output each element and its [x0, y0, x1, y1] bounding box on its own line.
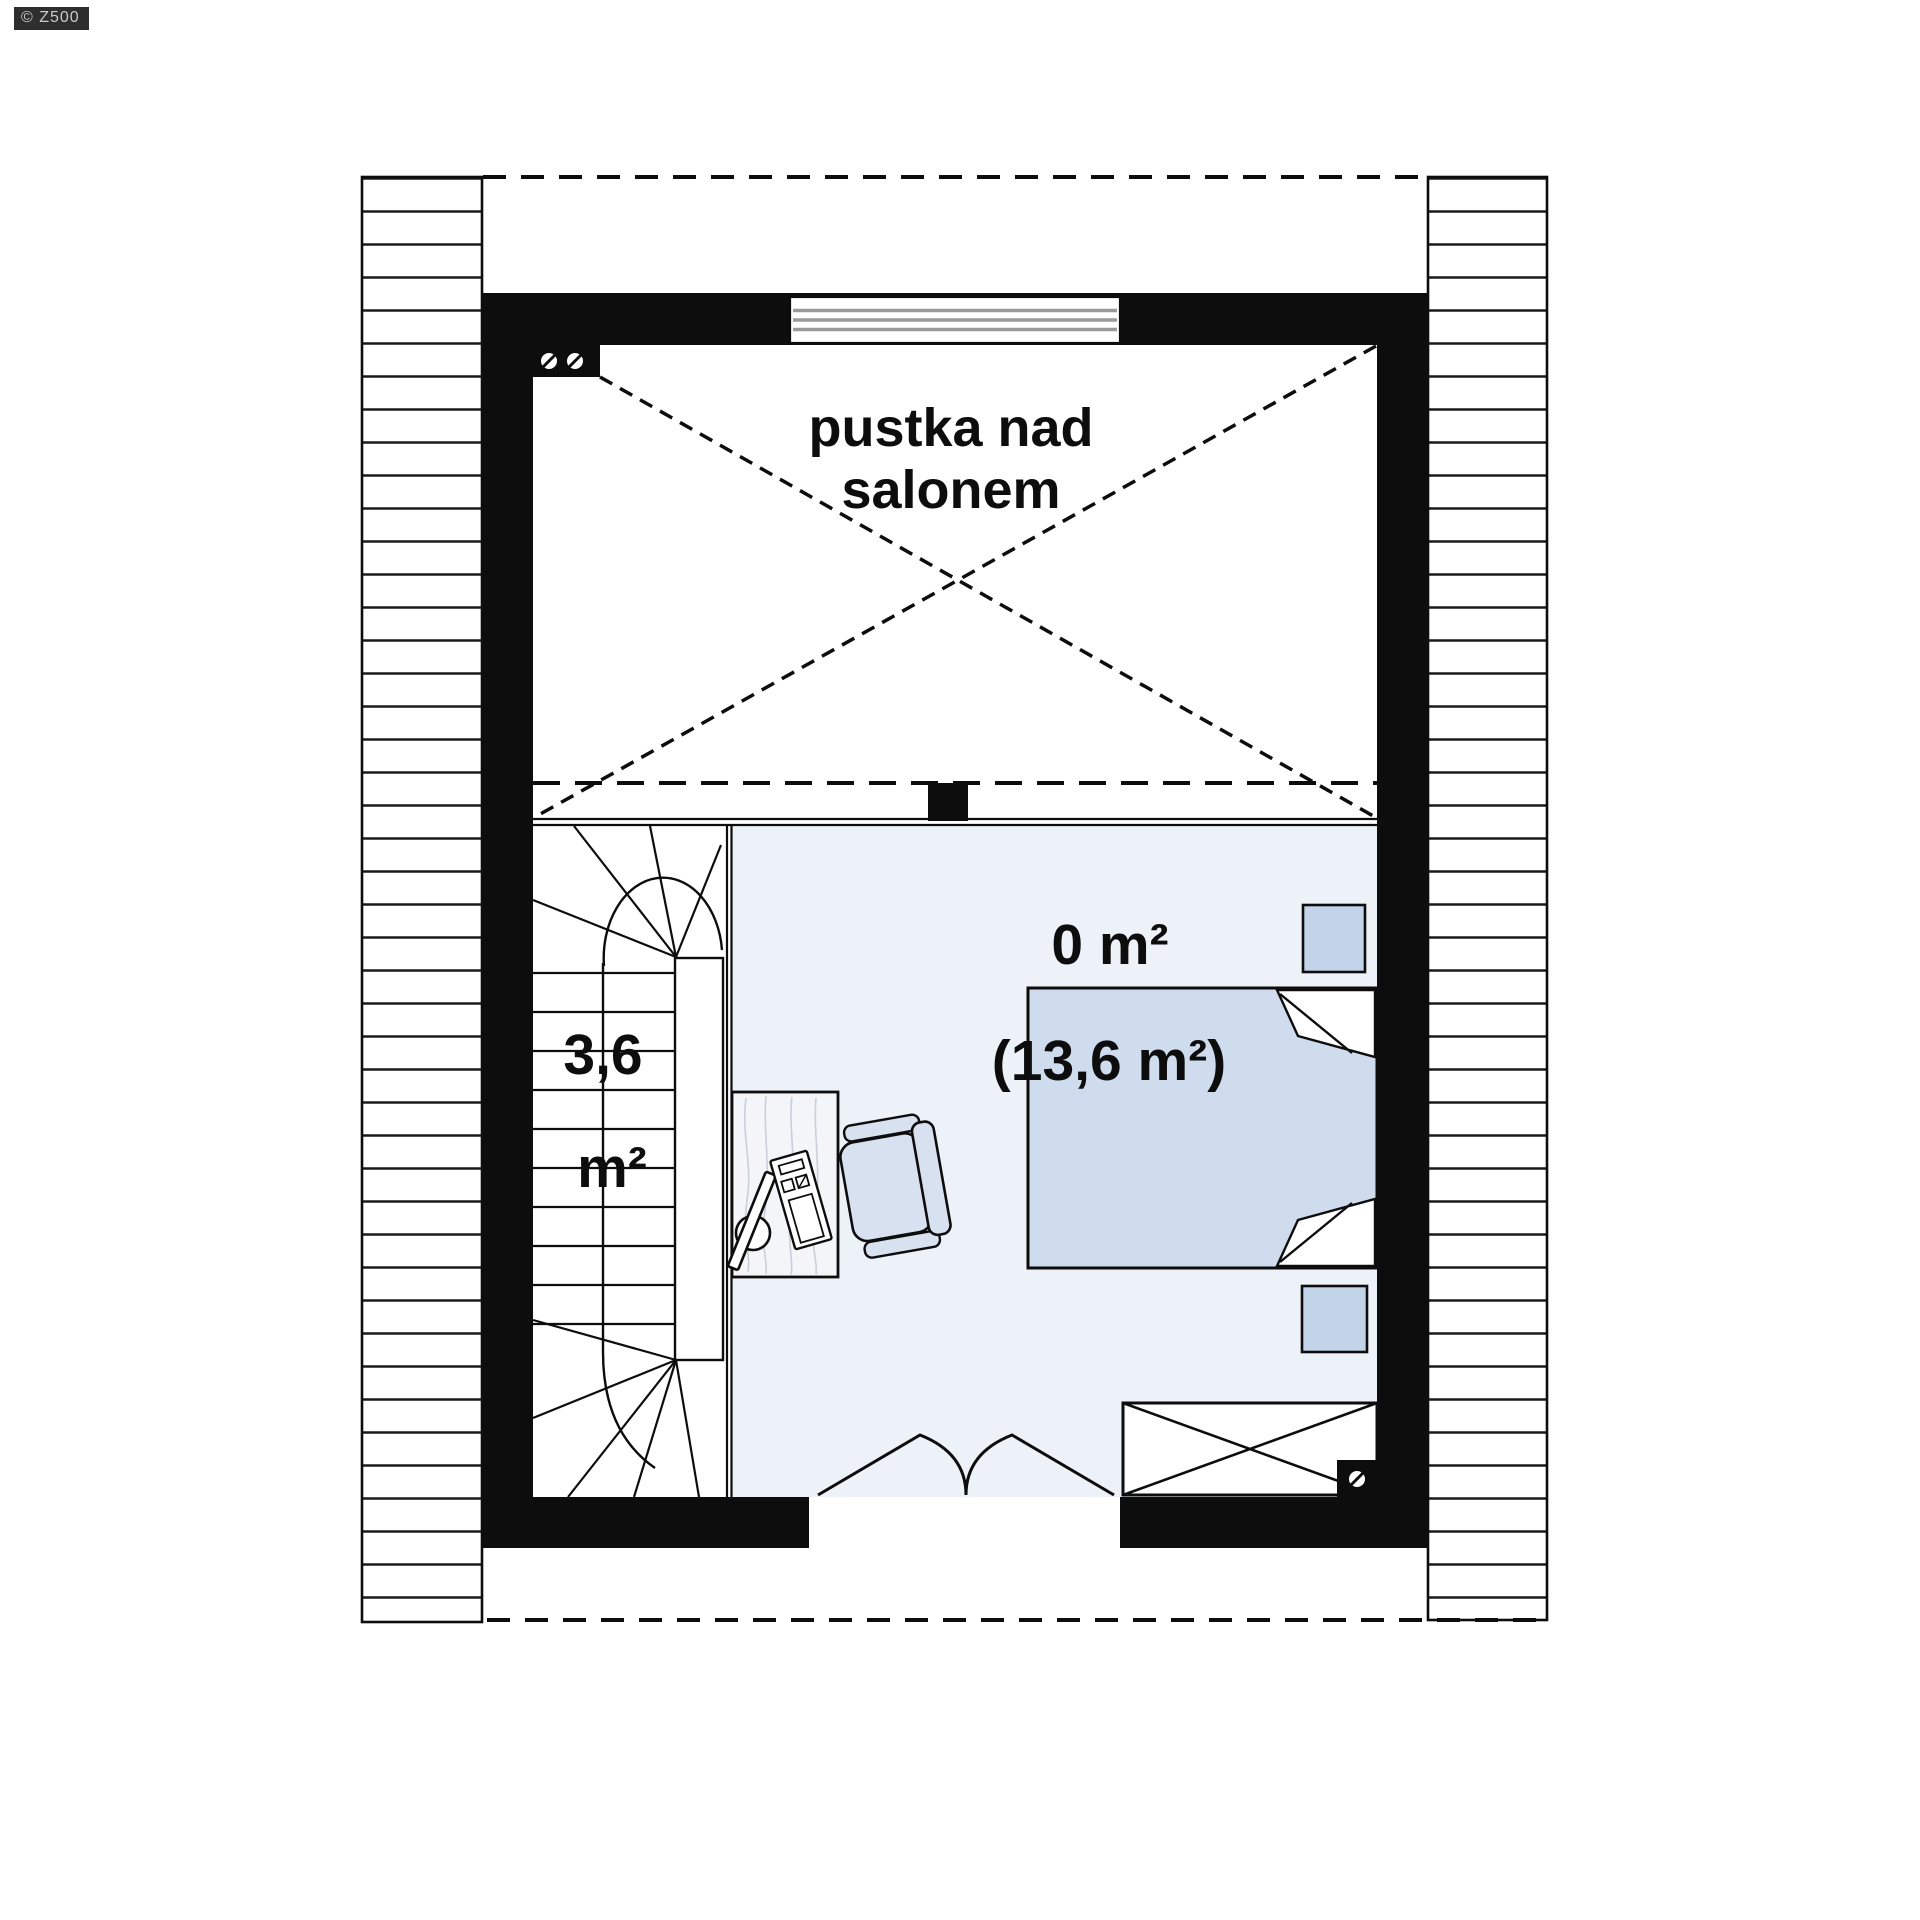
void-wall-stub [928, 783, 968, 821]
void-label-line2: salonem [841, 460, 1060, 520]
roof-hatch-right [1428, 177, 1547, 1620]
roof-hatch-left [362, 177, 482, 1622]
stairs-area-label: 3,6 m² [563, 1023, 646, 1200]
floor-plan: pustka nad salonem 0 m² (13,6 m²) 3,6 m² [0, 0, 1920, 1920]
nightstand [1303, 905, 1365, 972]
wall-anchor-icon [1348, 1470, 1366, 1488]
void-label: pustka nad salonem [808, 398, 1093, 520]
bedroom-area-value: 0 m² [1051, 913, 1168, 977]
wall-anchor-icon [566, 352, 584, 370]
window [790, 297, 1120, 343]
void-label-line1: pustka nad [808, 398, 1093, 458]
nightstand [1302, 1286, 1367, 1352]
stairs-area-unit: m² [577, 1136, 647, 1200]
bedroom-area-alt-value: (13,6 m²) [992, 1029, 1226, 1093]
wall-anchor-icon [540, 352, 558, 370]
desk [728, 1092, 838, 1277]
stair-upper-flight-strip [675, 958, 723, 1360]
stairs-area-value: 3,6 [563, 1023, 642, 1087]
stair-upper-winder [533, 826, 722, 966]
